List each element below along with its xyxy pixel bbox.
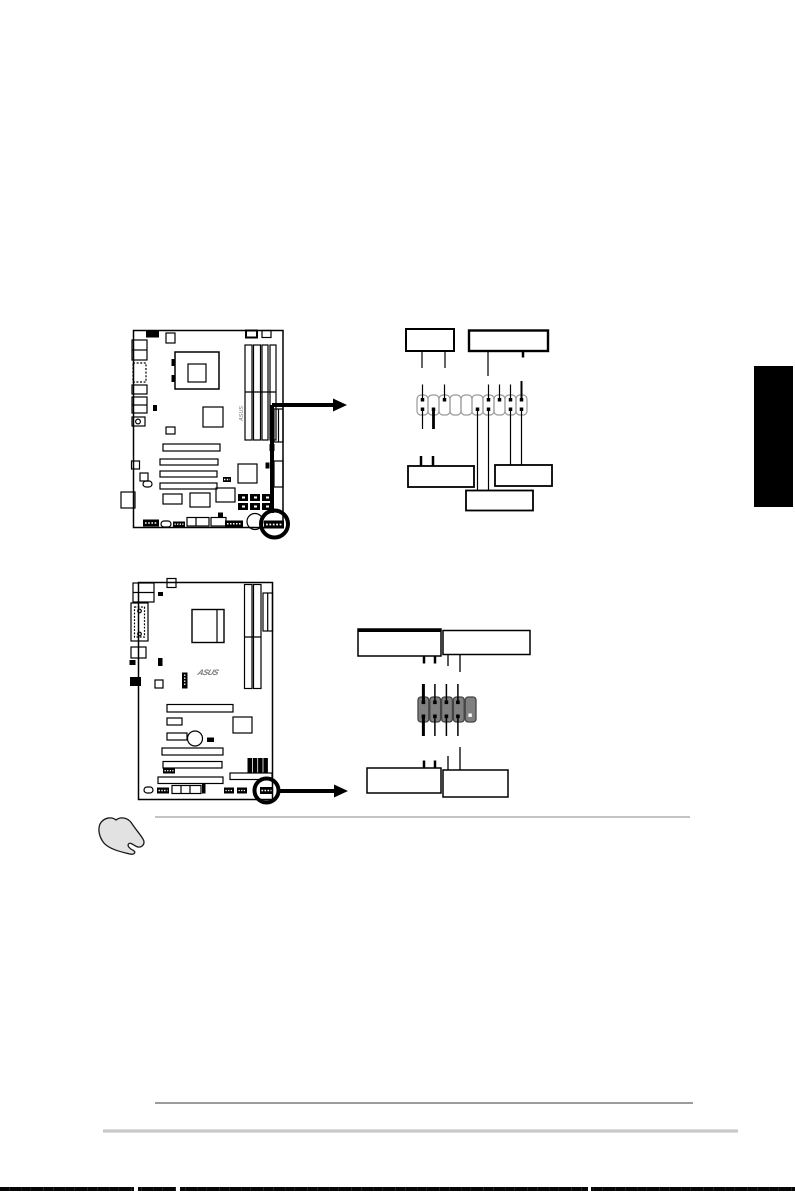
pin-leads-bottom bbox=[421, 408, 524, 491]
pinout-label-box bbox=[358, 629, 441, 656]
pinout-label-box bbox=[466, 491, 533, 511]
page-line-art: ASUS bbox=[0, 0, 795, 1197]
pointing-hand-icon bbox=[99, 818, 144, 854]
front-panel-pinout-bottom bbox=[358, 629, 530, 797]
arrow-right-icon bbox=[334, 785, 348, 798]
callout-top bbox=[261, 399, 347, 538]
arrow-right-icon bbox=[333, 399, 347, 412]
pinout-label-box bbox=[443, 631, 530, 655]
motherboard-diagram-top: ASUS bbox=[121, 331, 284, 530]
sata-ports bbox=[238, 494, 272, 510]
scanned-manual-page: ASUS bbox=[0, 0, 795, 1197]
scan-bar-gap bbox=[134, 1187, 138, 1191]
note-section bbox=[99, 817, 693, 1103]
pinout-label-box bbox=[408, 466, 474, 487]
chapter-tab bbox=[754, 366, 793, 507]
pinout-label-box bbox=[406, 329, 454, 351]
motherboard-diagram-bottom: ASUS bbox=[130, 579, 274, 800]
board-logo: ASUS bbox=[239, 406, 245, 422]
pinout-label-box bbox=[367, 768, 441, 793]
cmos-battery bbox=[188, 731, 203, 746]
sata-ports bbox=[248, 758, 268, 773]
scan-bar-gap bbox=[176, 1187, 180, 1191]
front-panel-pinout-top bbox=[406, 329, 552, 511]
scan-edge-bar bbox=[0, 1187, 795, 1191]
pinout-label-box bbox=[443, 770, 508, 797]
pinout-label-box bbox=[495, 465, 552, 486]
pinout-label-box bbox=[469, 331, 548, 352]
board-logo: ASUS bbox=[195, 668, 220, 677]
scan-bar-gap bbox=[588, 1187, 591, 1191]
